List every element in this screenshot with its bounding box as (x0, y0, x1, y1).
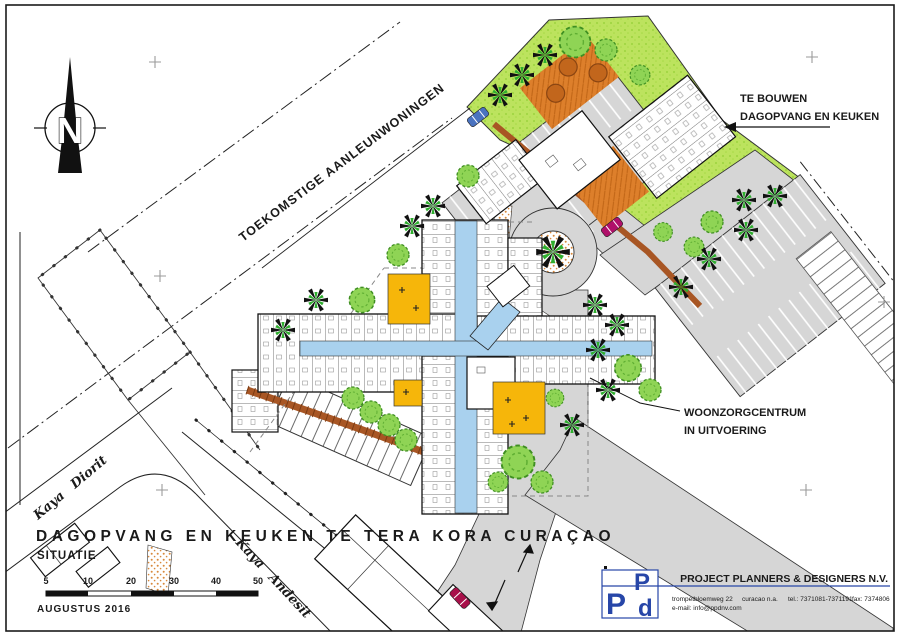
sheet-subtitle: SITUATIE (37, 550, 97, 562)
firm-email: e-mail: info@ppdnv.com (672, 605, 742, 612)
stipple-path-south (146, 545, 172, 595)
logo-letter-p-main: P (606, 588, 626, 621)
logo-letter-p-top: P (634, 569, 650, 596)
svg-text:50: 50 (253, 576, 263, 586)
sheet-title: DAGOPVANG EN KEUKEN TE TERA KORA CURAÇAO (36, 528, 615, 545)
firm-name: PROJECT PLANNERS & DESIGNERS N.V. (680, 573, 888, 585)
site-plan-sheet: N TOEKOMSTIGE AANLEUNWONINGEN TE BOUWEN … (0, 0, 900, 636)
svg-text:IN UITVOERING: IN UITVOERING (684, 425, 767, 437)
svg-text:WOONZORGCENTRUM: WOONZORGCENTRUM (684, 407, 806, 419)
svg-text:40: 40 (211, 576, 221, 586)
north-arrow: N (34, 57, 106, 173)
north-label: N (57, 110, 83, 151)
svg-text:5: 5 (43, 576, 48, 586)
courtyard-north (388, 274, 430, 324)
logo-letter-d: d (638, 595, 653, 622)
courtyard-south (493, 382, 545, 434)
street-kaya-andesit: Kaya Andesit (231, 535, 313, 622)
palm-tree (421, 195, 445, 218)
svg-text:30: 30 (169, 576, 179, 586)
site-plan-drawing: N TOEKOMSTIGE AANLEUNWONINGEN TE BOUWEN … (0, 0, 900, 636)
svg-text:10: 10 (83, 576, 93, 586)
svg-text:TE BOUWEN: TE BOUWEN (740, 93, 807, 105)
parcel-outline (38, 230, 260, 495)
svg-text:DAGOPVANG EN KEUKEN: DAGOPVANG EN KEUKEN (740, 111, 879, 123)
courtyard-small (394, 380, 422, 406)
svg-text:20: 20 (126, 576, 136, 586)
label-to-build: TE BOUWEN DAGOPVANG EN KEUKEN (724, 93, 879, 132)
label-care-center: WOONZORGCENTRUM IN UITVOERING (590, 378, 806, 437)
road-southeast-diagonal (525, 418, 893, 636)
sheet-date: AUGUSTUS 2016 (37, 604, 131, 615)
